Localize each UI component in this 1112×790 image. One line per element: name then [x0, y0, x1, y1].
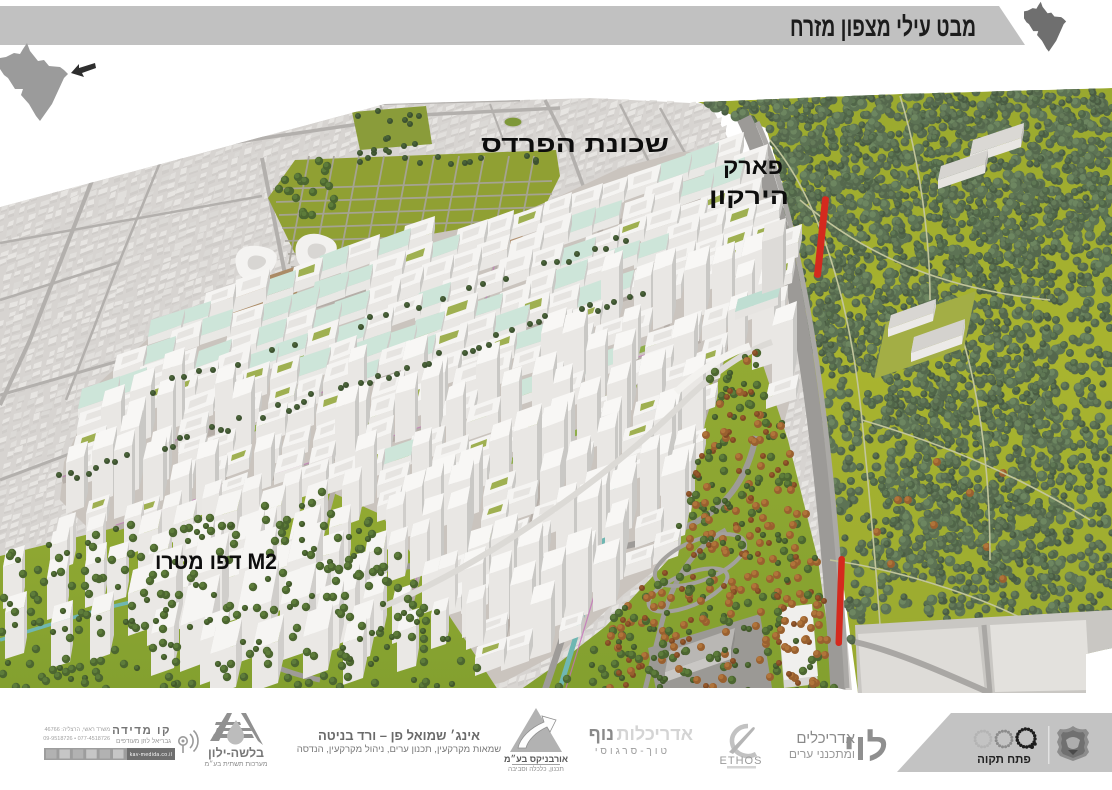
svg-text:הירקון: הירקון: [709, 184, 789, 209]
svg-text:פארק: פארק: [723, 154, 783, 179]
svg-text:שכונת הפרדס: שכונת הפרדס: [481, 131, 669, 157]
svg-text:טוך-סרגוסי: טוך-סרגוסי: [595, 746, 670, 757]
svg-text:בלשה-ילון: בלשה-ילון: [208, 746, 264, 760]
svg-text:ETHOS: ETHOS: [720, 755, 763, 767]
svg-text:מערכות תשתית בע״מ: מערכות תשתית בע״מ: [205, 761, 268, 768]
svg-text:אדריכלים: אדריכלים: [796, 730, 855, 747]
svg-text:גבריאל לוזן מעודפים: גבריאל לוזן מעודפים: [116, 737, 171, 745]
svg-text:kav-medida.co.il: kav-medida.co.il: [130, 752, 173, 758]
svg-text:נוף: נוף: [589, 724, 614, 744]
svg-text:תכנון, כלכלה וסביבה: תכנון, כלכלה וסביבה: [508, 765, 564, 773]
svg-text:ומתכנני ערים: ומתכנני ערים: [789, 747, 855, 761]
svg-text:מבט עילי מצפון מזרח: מבט עילי מצפון מזרח: [790, 12, 976, 42]
svg-text:46766 :משרד ראשי, הרצליה: 46766 :משרד ראשי, הרצליה: [44, 726, 110, 733]
svg-text:09-9518726 • 077-4518726: 09-9518726 • 077-4518726: [43, 736, 110, 742]
svg-text:אורבניקס בע״מ: אורבניקס בע״מ: [504, 754, 568, 764]
svg-text:שמאות מקרקעין, תכנון ערים, ניה: שמאות מקרקעין, תכנון ערים, ניהול מקרקעין…: [297, 743, 502, 755]
svg-text:קו מדידה: קו מדידה: [112, 725, 171, 737]
svg-text:אדריכלות: אדריכלות: [617, 724, 693, 744]
svg-text:אינג׳ שמואל פן – ורד בניטה: אינג׳ שמואל פן – ורד בניטה: [318, 728, 480, 743]
svg-text:פתח תקוה: פתח תקוה: [977, 754, 1031, 766]
svg-text:דפו מטרו M2: דפו מטרו M2: [155, 549, 277, 574]
